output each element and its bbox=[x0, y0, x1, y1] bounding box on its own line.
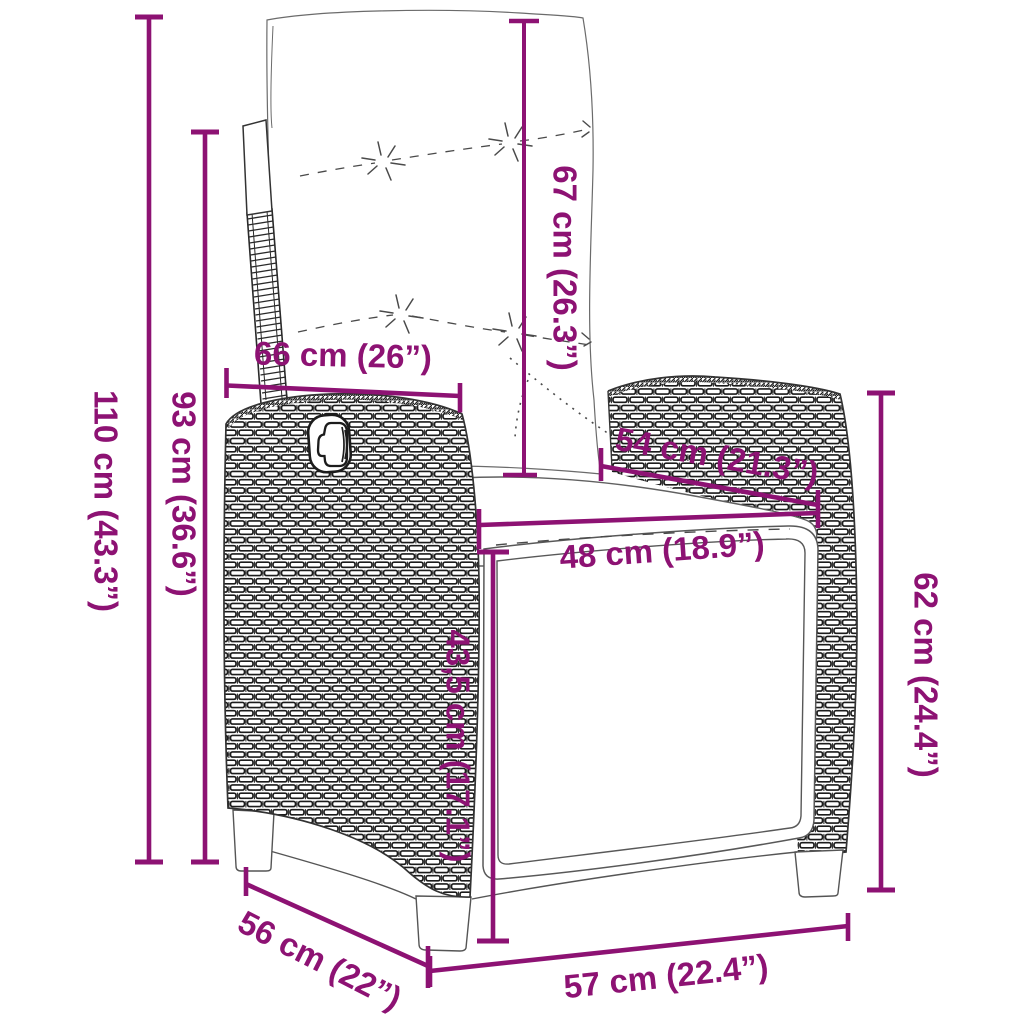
svg-text:110 cm (43.3”): 110 cm (43.3”) bbox=[87, 390, 124, 612]
svg-text:62 cm (24.4”): 62 cm (24.4”) bbox=[907, 572, 944, 777]
svg-text:66 cm (26”): 66 cm (26”) bbox=[254, 335, 433, 376]
svg-text:67 cm (26.3”): 67 cm (26.3”) bbox=[546, 165, 583, 370]
svg-text:93 cm (36.6”): 93 cm (36.6”) bbox=[165, 391, 202, 596]
svg-text:43,5 cm (17.1”): 43,5 cm (17.1”) bbox=[439, 630, 476, 863]
